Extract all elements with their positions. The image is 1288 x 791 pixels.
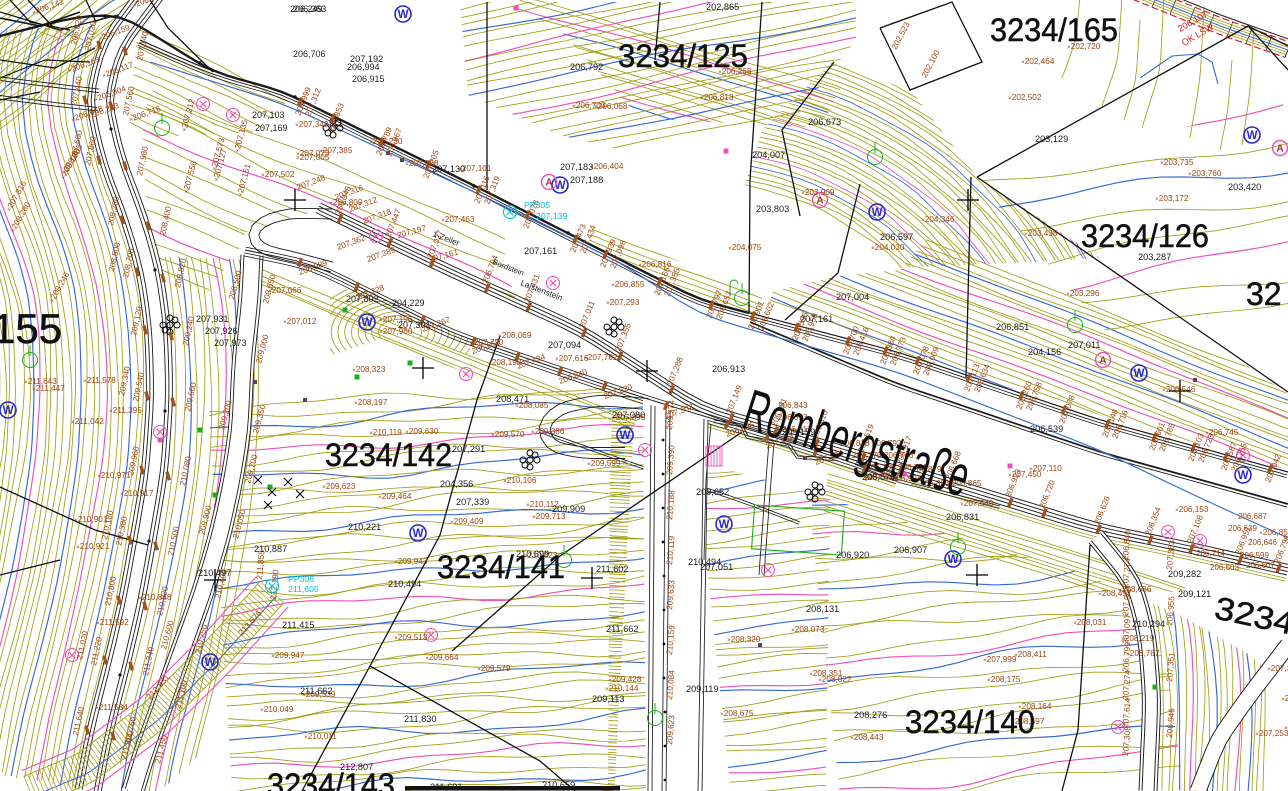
svg-text:×207,463: ×207,463 bbox=[441, 215, 475, 224]
svg-text:×210,848: ×210,848 bbox=[138, 593, 172, 602]
svg-text:3234/165: 3234/165 bbox=[990, 12, 1118, 48]
svg-text:206,706: 206,706 bbox=[293, 49, 326, 59]
svg-text:×208,457: ×208,457 bbox=[1098, 589, 1132, 598]
svg-text:×211,042: ×211,042 bbox=[71, 417, 104, 426]
svg-text:×209,579: ×209,579 bbox=[477, 664, 511, 673]
svg-text:155: 155 bbox=[0, 305, 62, 352]
svg-text:208,471: 208,471 bbox=[496, 394, 529, 404]
svg-text:206,792: 206,792 bbox=[570, 62, 603, 72]
svg-text:×210,011: ×210,011 bbox=[304, 732, 337, 741]
svg-text:206,599: 206,599 bbox=[1240, 551, 1269, 560]
svg-text:207,094: 207,094 bbox=[548, 340, 581, 350]
svg-text:206,646: 206,646 bbox=[1248, 538, 1277, 547]
svg-text:207,973: 207,973 bbox=[214, 338, 247, 348]
svg-text:×208,411: ×208,411 bbox=[1014, 650, 1047, 659]
svg-text:32: 32 bbox=[1246, 276, 1282, 312]
svg-text:203,420: 203,420 bbox=[1228, 182, 1261, 192]
svg-text:×209,464: ×209,464 bbox=[378, 492, 412, 501]
svg-text:207,161: 207,161 bbox=[800, 314, 833, 324]
svg-text:W: W bbox=[1238, 470, 1249, 482]
svg-text:×203,760: ×203,760 bbox=[1188, 169, 1222, 178]
svg-text:207,339: 207,339 bbox=[456, 497, 489, 507]
svg-text:206,714: 206,714 bbox=[1196, 549, 1225, 558]
svg-text:×210,921: ×210,921 bbox=[76, 542, 110, 551]
svg-text:207,926: 207,926 bbox=[205, 326, 238, 336]
svg-text:207,802: 207,802 bbox=[346, 294, 379, 304]
svg-text:×208,031: ×208,031 bbox=[1073, 618, 1107, 627]
svg-text:W: W bbox=[719, 519, 730, 531]
svg-text:203,129: 203,129 bbox=[1035, 134, 1068, 144]
svg-text:×210,901: ×210,901 bbox=[74, 515, 108, 524]
svg-text:206,831: 206,831 bbox=[946, 512, 979, 522]
svg-text:207,183: 207,183 bbox=[560, 162, 593, 172]
svg-text:W: W bbox=[620, 430, 631, 442]
svg-text:203,803: 203,803 bbox=[756, 204, 789, 214]
svg-text:3234/140: 3234/140 bbox=[905, 704, 1035, 740]
svg-text:209,119: 209,119 bbox=[686, 684, 719, 694]
svg-text:3234/143: 3234/143 bbox=[267, 767, 395, 791]
svg-text:202,865: 202,865 bbox=[706, 2, 739, 12]
svg-text:207,169: 207,169 bbox=[255, 123, 288, 133]
svg-text:206,915: 206,915 bbox=[352, 74, 385, 84]
svg-text:PP305: PP305 bbox=[524, 200, 550, 210]
svg-text:206,994: 206,994 bbox=[347, 62, 380, 72]
svg-text:W: W bbox=[413, 528, 424, 540]
svg-text:×209,570: ×209,570 bbox=[491, 430, 525, 439]
svg-text:209,652: 209,652 bbox=[696, 487, 729, 497]
svg-text:×208,175: ×208,175 bbox=[987, 675, 1021, 684]
svg-text:×208,219: ×208,219 bbox=[1121, 634, 1155, 643]
svg-text:×208,323: ×208,323 bbox=[352, 365, 386, 374]
svg-text:×206,404: ×206,404 bbox=[590, 162, 624, 171]
svg-text:×208,069: ×208,069 bbox=[498, 331, 532, 340]
svg-text:×207,847: ×207,847 bbox=[1281, 694, 1288, 703]
svg-text:×210,119: ×210,119 bbox=[369, 428, 402, 437]
svg-text:211,605: 211,605 bbox=[288, 584, 319, 594]
svg-text:211,602: 211,602 bbox=[596, 564, 629, 574]
svg-text:204,156: 204,156 bbox=[1028, 347, 1061, 357]
svg-text:×203,909: ×203,909 bbox=[801, 188, 835, 197]
svg-text:A: A bbox=[816, 196, 823, 207]
svg-text:3234/125: 3234/125 bbox=[618, 38, 748, 74]
svg-text:209,909: 209,909 bbox=[552, 504, 585, 514]
svg-text:×209,513: ×209,513 bbox=[394, 633, 428, 642]
svg-text:×202,464: ×202,464 bbox=[1021, 57, 1055, 66]
svg-text:207,139: 207,139 bbox=[536, 211, 568, 221]
svg-text:3234/126: 3234/126 bbox=[1081, 218, 1209, 254]
svg-text:210,659: 210,659 bbox=[542, 780, 575, 790]
svg-text:×208,443: ×208,443 bbox=[850, 733, 884, 742]
svg-text:×206,858: ×206,858 bbox=[1259, 528, 1288, 537]
svg-text:209,121: 209,121 bbox=[1178, 589, 1211, 599]
svg-text:W: W bbox=[362, 317, 373, 329]
svg-text:206,607: 206,607 bbox=[1246, 561, 1275, 570]
svg-text:×202,502: ×202,502 bbox=[1008, 93, 1042, 102]
svg-text:×207,540: ×207,540 bbox=[960, 499, 994, 508]
svg-text:A: A bbox=[1276, 144, 1283, 155]
svg-text:×208,073: ×208,073 bbox=[791, 625, 825, 634]
svg-text:210,887: 210,887 bbox=[254, 544, 287, 554]
svg-text:W: W bbox=[948, 554, 959, 566]
svg-text:×211,578: ×211,578 bbox=[83, 376, 116, 385]
svg-text:204,229: 204,229 bbox=[392, 298, 425, 308]
svg-text:×203,296: ×203,296 bbox=[1066, 289, 1100, 298]
svg-text:208,276: 208,276 bbox=[854, 710, 887, 720]
svg-text:×206,153: ×206,153 bbox=[1175, 505, 1209, 514]
svg-text:211,415: 211,415 bbox=[282, 620, 315, 630]
svg-text:×207,066: ×207,066 bbox=[268, 286, 302, 295]
svg-text:207,011: 207,011 bbox=[1068, 340, 1101, 350]
svg-text:×204,075: ×204,075 bbox=[728, 243, 762, 252]
svg-text:206,597: 206,597 bbox=[880, 232, 913, 242]
svg-text:×209,599: ×209,599 bbox=[587, 459, 621, 468]
svg-text:206,687: 206,687 bbox=[1238, 512, 1267, 521]
svg-text:PP306: PP306 bbox=[288, 574, 314, 584]
svg-text:210,497: 210,497 bbox=[198, 568, 231, 578]
svg-text:×207,242: ×207,242 bbox=[1284, 723, 1288, 732]
svg-text:×206,855: ×206,855 bbox=[611, 280, 645, 289]
svg-text:206,907: 206,907 bbox=[894, 545, 927, 555]
svg-text:206,503: 206,503 bbox=[1210, 563, 1239, 572]
svg-text:207,291: 207,291 bbox=[452, 444, 485, 454]
svg-text:×211,447: ×211,447 bbox=[32, 384, 65, 393]
svg-text:211,691: 211,691 bbox=[430, 782, 463, 791]
svg-text:×210,049: ×210,049 bbox=[260, 705, 294, 714]
svg-text:207,931: 207,931 bbox=[196, 314, 229, 324]
svg-text:×206,068: ×206,068 bbox=[594, 102, 628, 111]
svg-text:×207,304: ×207,304 bbox=[1267, 664, 1288, 673]
svg-text:×207,012: ×207,012 bbox=[283, 317, 317, 326]
svg-text:×203,172: ×203,172 bbox=[1155, 194, 1189, 203]
svg-text:206,851: 206,851 bbox=[996, 322, 1029, 332]
svg-text:3234/141: 3234/141 bbox=[437, 549, 565, 585]
svg-text:×207,502: ×207,502 bbox=[261, 170, 295, 179]
svg-text:×208,787: ×208,787 bbox=[1126, 649, 1160, 658]
svg-text:207,301: 207,301 bbox=[398, 320, 431, 330]
svg-text:W: W bbox=[205, 657, 216, 669]
svg-text:×208,351: ×208,351 bbox=[809, 669, 843, 678]
svg-text:×209,623: ×209,623 bbox=[322, 482, 356, 491]
svg-text:W: W bbox=[1134, 368, 1145, 380]
svg-text:×210,144: ×210,144 bbox=[605, 684, 639, 693]
svg-text:×209,947: ×209,947 bbox=[271, 651, 305, 660]
svg-text:207,103: 207,103 bbox=[252, 110, 285, 120]
svg-text:207,161: 207,161 bbox=[524, 246, 557, 256]
svg-text:×206,816: ×206,816 bbox=[638, 260, 672, 269]
svg-text:×209,409: ×209,409 bbox=[450, 517, 484, 526]
svg-text:211,830: 211,830 bbox=[404, 714, 437, 724]
svg-text:207,051: 207,051 bbox=[700, 562, 733, 572]
svg-text:W: W bbox=[1247, 130, 1258, 142]
svg-text:×211,584: ×211,584 bbox=[95, 703, 128, 712]
svg-text:210,494: 210,494 bbox=[388, 579, 421, 589]
svg-text:×209,428: ×209,428 bbox=[608, 675, 642, 684]
svg-text:207,080: 207,080 bbox=[612, 410, 645, 420]
svg-text:207,188: 207,188 bbox=[570, 175, 603, 185]
svg-text:×209,386: ×209,386 bbox=[531, 427, 565, 436]
svg-text:×203,735: ×203,735 bbox=[1160, 158, 1194, 167]
svg-text:×207,999: ×207,999 bbox=[983, 655, 1017, 664]
svg-text:×210,106: ×210,106 bbox=[503, 476, 537, 485]
svg-text:×204,030: ×204,030 bbox=[871, 243, 905, 252]
svg-text:A: A bbox=[1099, 356, 1106, 367]
svg-text:210,294: 210,294 bbox=[1132, 619, 1165, 629]
svg-text:×206,546: ×206,546 bbox=[1162, 385, 1196, 394]
svg-text:×208,198: ×208,198 bbox=[488, 358, 522, 367]
svg-text:206,539: 206,539 bbox=[1030, 424, 1063, 434]
svg-text:207,130: 207,130 bbox=[432, 164, 465, 174]
svg-text:210,221: 210,221 bbox=[348, 522, 381, 532]
svg-text:×206,745: ×206,745 bbox=[1205, 428, 1239, 437]
svg-text:×207,348: ×207,348 bbox=[295, 120, 329, 129]
svg-text:×207,385: ×207,385 bbox=[319, 146, 353, 155]
svg-text:×209,664: ×209,664 bbox=[425, 653, 459, 662]
svg-text:211,662: 211,662 bbox=[300, 686, 333, 696]
svg-text:W: W bbox=[3, 405, 14, 417]
svg-text:206,673: 206,673 bbox=[808, 117, 841, 127]
svg-text:209,113: 209,113 bbox=[592, 694, 625, 704]
svg-text:×210,971: ×210,971 bbox=[97, 471, 131, 480]
svg-text:×206,813: ×206,813 bbox=[700, 93, 734, 102]
svg-text:×208,320: ×208,320 bbox=[727, 635, 761, 644]
svg-text:206,249: 206,249 bbox=[290, 4, 323, 14]
svg-text:×210,917: ×210,917 bbox=[120, 489, 154, 498]
svg-text:204,356: 204,356 bbox=[440, 479, 473, 489]
svg-text:×207,110: ×207,110 bbox=[1029, 464, 1062, 473]
svg-text:A: A bbox=[545, 178, 552, 189]
svg-text:×211,592: ×211,592 bbox=[96, 618, 129, 627]
svg-text:×207,782: ×207,782 bbox=[584, 353, 618, 362]
svg-text:×208,675: ×208,675 bbox=[720, 709, 754, 718]
svg-text:3234/142: 3234/142 bbox=[325, 437, 452, 473]
svg-text:×203,438: ×203,438 bbox=[1024, 229, 1058, 238]
svg-text:×209,943: ×209,943 bbox=[394, 557, 428, 566]
svg-text:×207,293: ×207,293 bbox=[606, 298, 640, 307]
svg-text:W: W bbox=[398, 9, 409, 21]
svg-text:×209,630: ×209,630 bbox=[405, 427, 439, 436]
svg-text:211,662: 211,662 bbox=[606, 624, 639, 634]
svg-text:W: W bbox=[872, 207, 883, 219]
svg-text:×211,395: ×211,395 bbox=[109, 406, 142, 415]
svg-text:×207,230: ×207,230 bbox=[369, 137, 403, 146]
svg-text:×208,197: ×208,197 bbox=[354, 398, 388, 407]
svg-text:209,282: 209,282 bbox=[1168, 569, 1201, 579]
svg-text:206,913: 206,913 bbox=[712, 364, 745, 374]
svg-text:204,007: 204,007 bbox=[752, 150, 785, 160]
svg-text:206,920: 206,920 bbox=[836, 550, 869, 560]
svg-text:206,639: 206,639 bbox=[1228, 524, 1257, 533]
svg-text:×204,346: ×204,346 bbox=[921, 215, 955, 224]
svg-text:207,004: 207,004 bbox=[836, 292, 869, 302]
svg-text:208,131: 208,131 bbox=[806, 604, 839, 614]
